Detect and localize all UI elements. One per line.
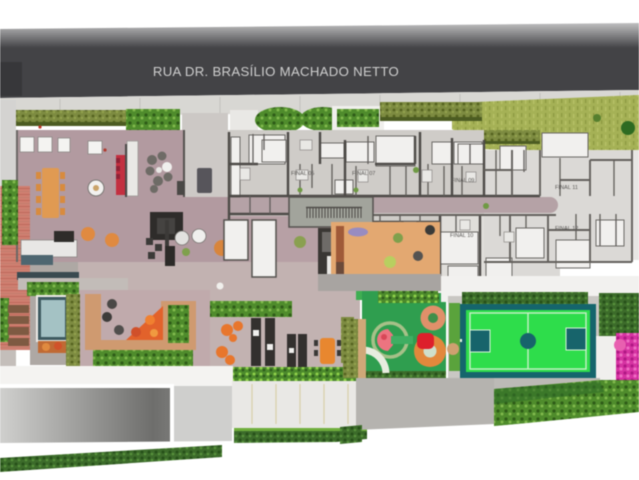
svg-text:FINAL 09: FINAL 09 <box>451 178 474 184</box>
svg-text:FINAL 11: FINAL 11 <box>555 185 578 191</box>
svg-text:FINAL 12: FINAL 12 <box>555 226 578 232</box>
svg-text:FINAL 10: FINAL 10 <box>450 233 473 239</box>
svg-text:FINAL 05: FINAL 05 <box>291 171 314 177</box>
svg-text:FINAL 07: FINAL 07 <box>352 171 375 177</box>
svg-text:RUA DR. BRASÍLIO MACHADO NETTO: RUA DR. BRASÍLIO MACHADO NETTO <box>153 64 399 79</box>
